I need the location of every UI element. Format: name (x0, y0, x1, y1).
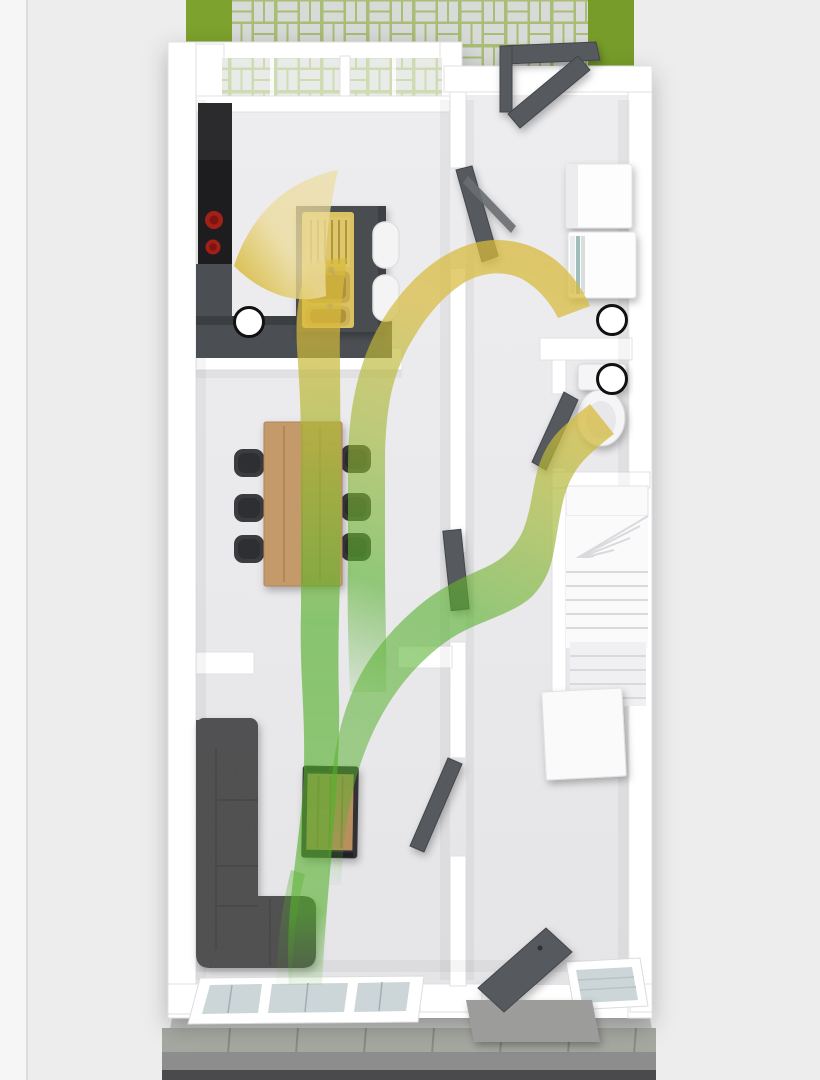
spine-wall-b (450, 268, 466, 553)
road (162, 1052, 656, 1072)
front-door-handle (538, 946, 543, 951)
kitchen-rear-window (196, 42, 462, 112)
floorplan-render (0, 0, 820, 1080)
floorplan-stage (0, 0, 820, 1080)
entrance-window-glass (576, 967, 638, 1003)
left-margin-edge (26, 0, 28, 1080)
hob-burner-1-core (210, 216, 219, 225)
glazing-bar-2 (392, 58, 396, 98)
outer-wall-left (168, 42, 196, 1018)
sofa-armrest (196, 718, 258, 744)
appliance-open-panel-3 (581, 236, 585, 294)
dining-chair (234, 449, 264, 477)
entrance-step (466, 1000, 600, 1042)
extract-valve-kitchen (235, 308, 264, 337)
window-return-left (196, 44, 224, 102)
hob-burner-2-core (209, 243, 217, 251)
utility-appliance-top-side (566, 164, 578, 228)
spine-wall-a (450, 92, 466, 168)
dining-chair (234, 535, 264, 563)
stair-landing (566, 486, 648, 516)
extract-valve-utility (598, 306, 627, 335)
understair-cupboard (542, 688, 626, 780)
glass-sheen-left (222, 58, 340, 98)
window-mullion (340, 56, 350, 100)
road-edge (162, 1070, 656, 1080)
window-head (196, 42, 460, 60)
dining-chair (234, 494, 264, 522)
window-sill (196, 96, 462, 112)
left-margin-strip (0, 0, 26, 1080)
back-door-post (500, 46, 512, 112)
tall-unit (198, 103, 232, 161)
wc-wall-upper (552, 360, 566, 394)
utility-north-wall-left (444, 66, 500, 92)
extract-valve-wc (598, 365, 627, 394)
shade-spine-east (466, 100, 474, 980)
bar-stool (373, 222, 399, 268)
glazing-bar-1 (270, 58, 274, 98)
back-door-canopy (500, 42, 600, 64)
